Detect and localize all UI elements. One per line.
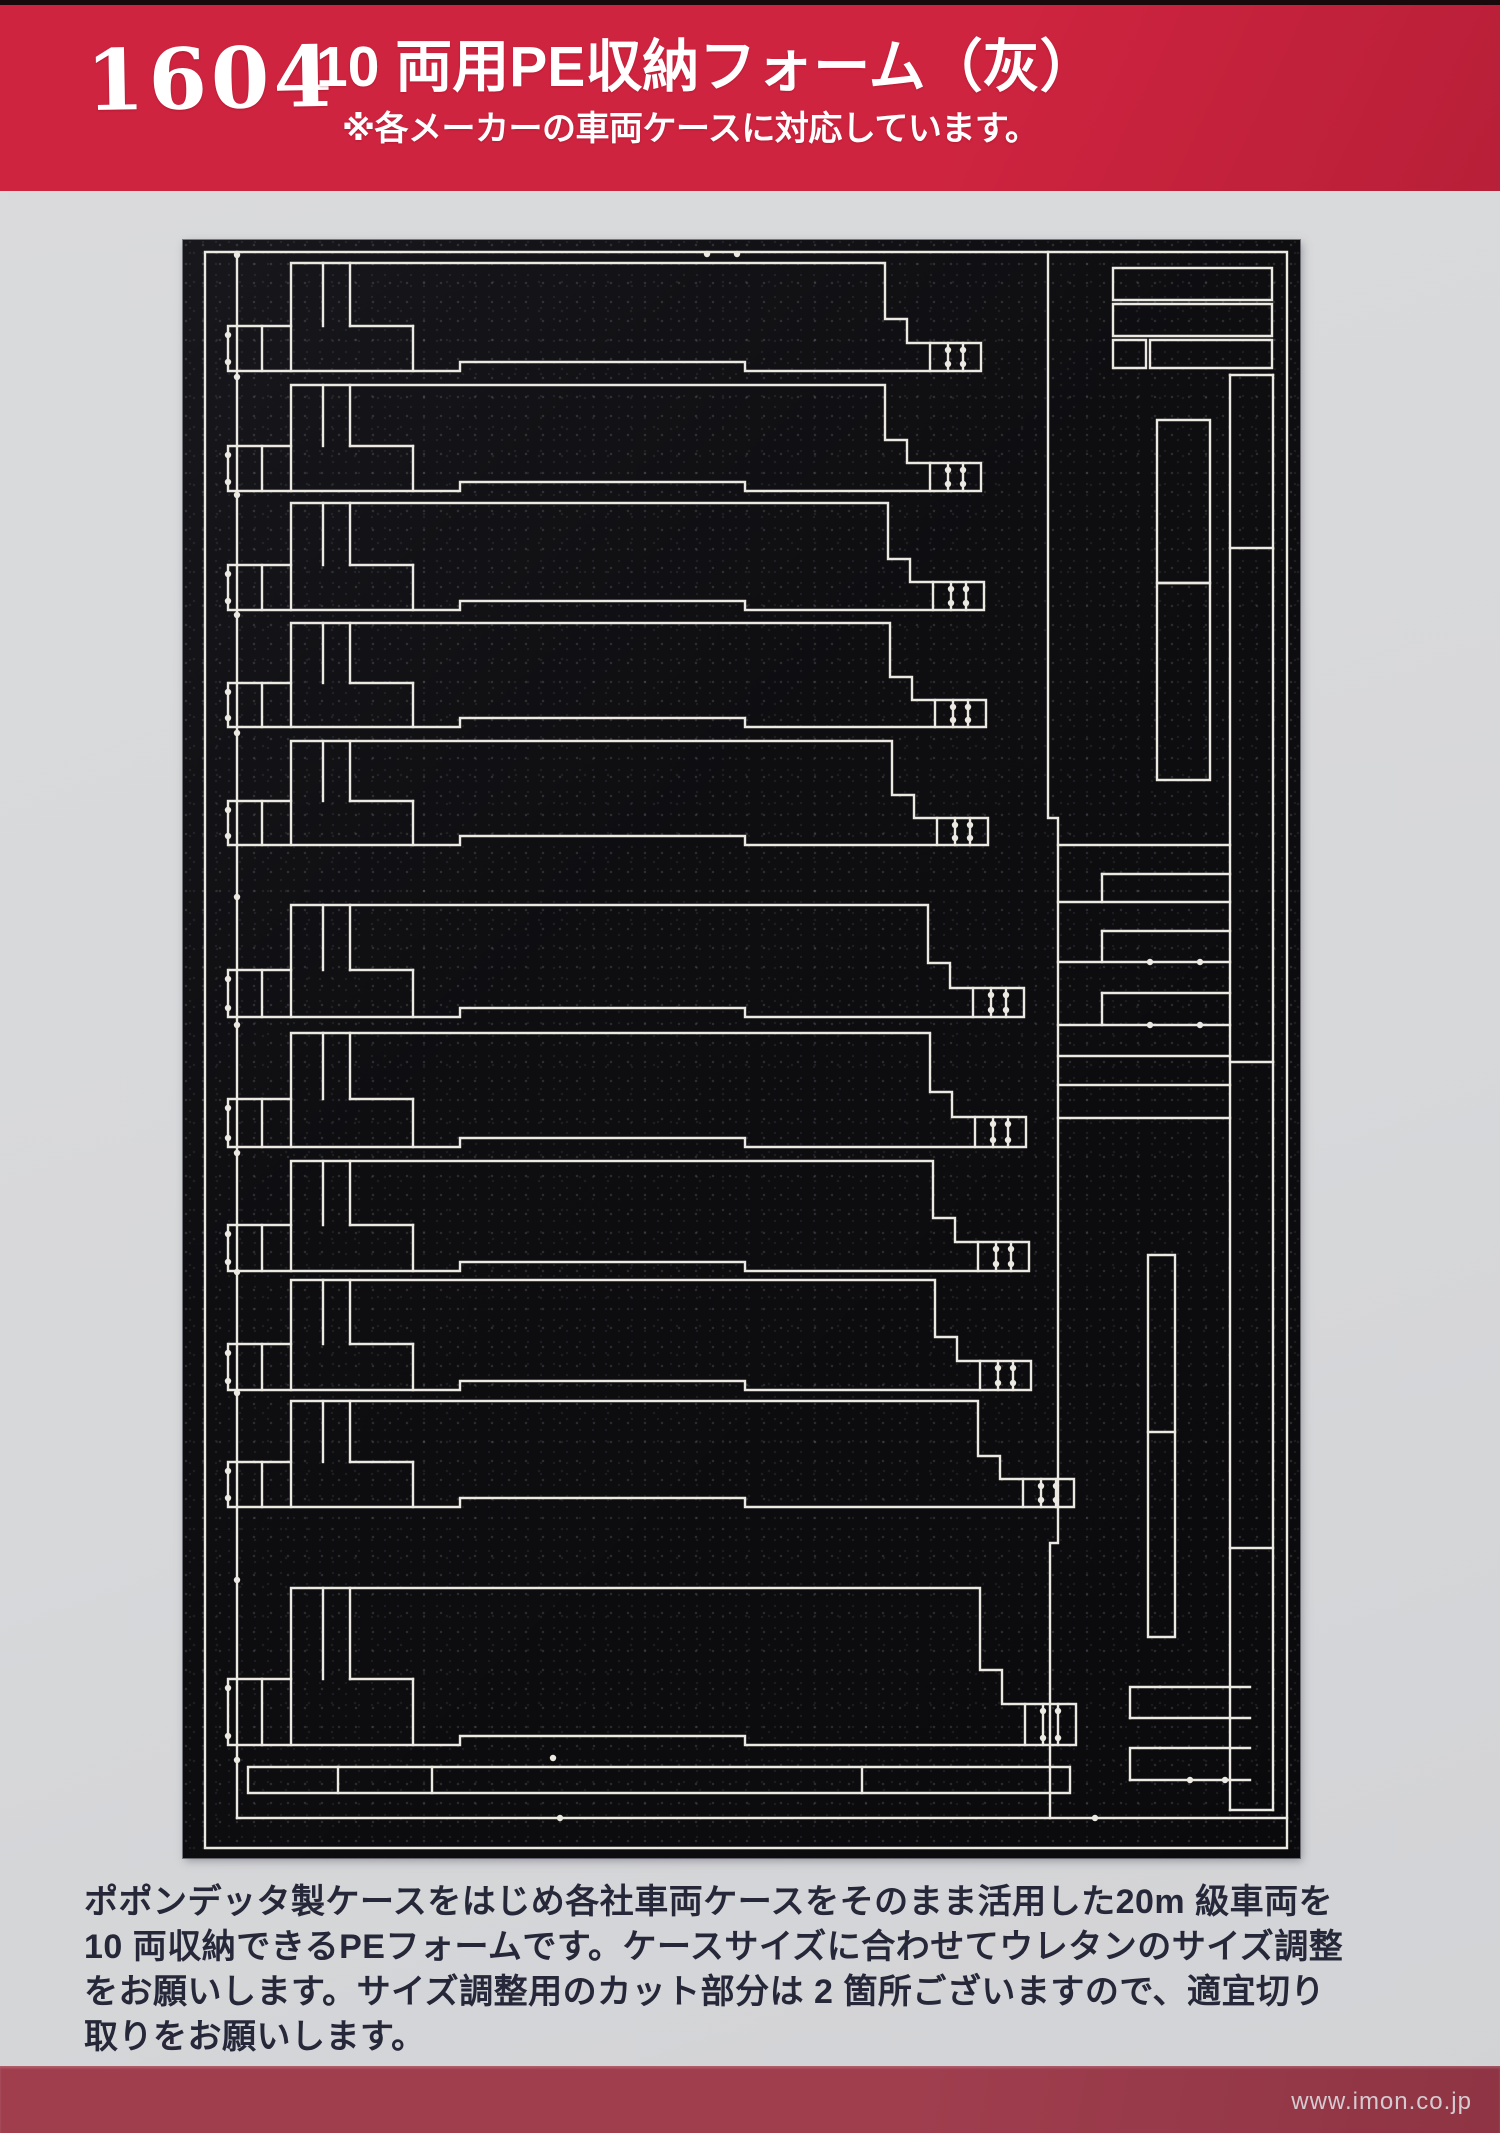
page-title: 10 両用PE収納フォーム（灰） (316, 21, 1416, 103)
foam-diagram-svg (183, 240, 1300, 1858)
header-band: 1604 10 両用PE収納フォーム（灰） ※各メーカーの車両ケースに対応してい… (0, 5, 1500, 191)
header-subtitle: ※各メーカーの車両ケースに対応しています。 (342, 101, 1442, 150)
package-front: 1604 10 両用PE収納フォーム（灰） ※各メーカーの車両ケースに対応してい… (0, 0, 1500, 2133)
foam-diagram-photo (183, 240, 1300, 1858)
description-text: ポポンデッタ製ケースをはじめ各社車両ケースをそのまま活用した20m 級車両を 1… (84, 1880, 1459, 2060)
bottom-band: www.imon.co.jp (0, 2066, 1500, 2133)
watermark-url: www.imon.co.jp (1291, 2088, 1472, 2116)
product-number: 1604 (85, 27, 336, 130)
